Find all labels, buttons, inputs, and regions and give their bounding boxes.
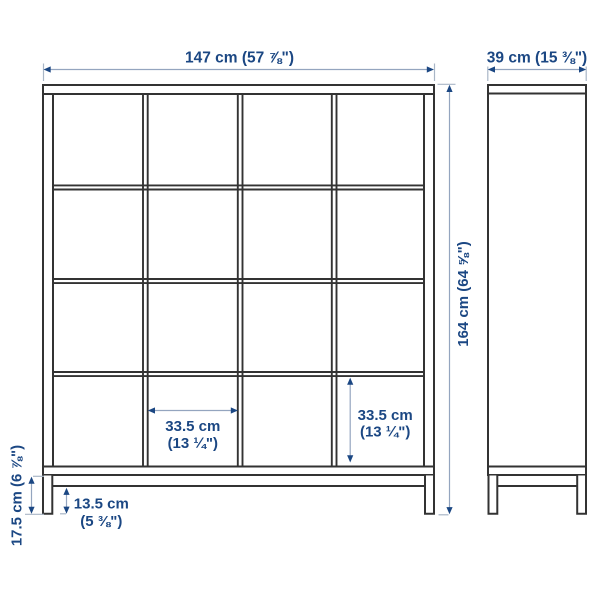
svg-text:17.5 cm (6 ⅞"): 17.5 cm (6 ⅞") (8, 445, 25, 546)
svg-text:147 cm (57 ⅞"): 147 cm (57 ⅞") (185, 49, 294, 66)
svg-text:33.5 cm: 33.5 cm (165, 418, 220, 435)
svg-text:39 cm (15 ⅜"): 39 cm (15 ⅜") (487, 49, 587, 66)
svg-text:(13 ¼"): (13 ¼") (168, 435, 218, 452)
svg-text:33.5 cm: 33.5 cm (358, 407, 413, 424)
svg-text:13.5 cm: 13.5 cm (74, 495, 129, 512)
svg-text:164 cm (64 ⅝"): 164 cm (64 ⅝") (455, 241, 472, 347)
svg-text:(5 ⅜"): (5 ⅜") (80, 513, 122, 530)
svg-text:(13 ¼"): (13 ¼") (360, 424, 410, 441)
